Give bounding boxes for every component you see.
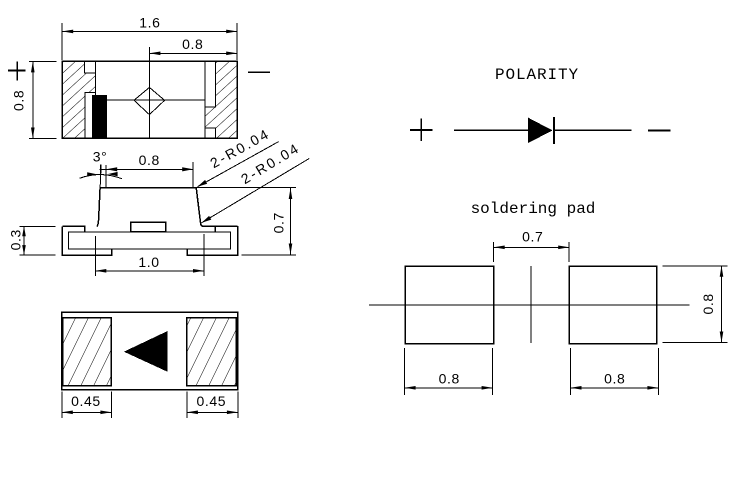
svg-text:3°: 3°: [93, 149, 108, 165]
svg-text:0.3: 0.3: [7, 229, 23, 250]
svg-text:0.8: 0.8: [604, 370, 625, 386]
svg-text:1.0: 1.0: [138, 254, 159, 270]
svg-text:0.8: 0.8: [139, 152, 160, 168]
svg-text:0.7: 0.7: [270, 212, 286, 233]
svg-text:0.45: 0.45: [196, 393, 226, 409]
svg-text:0.7: 0.7: [522, 229, 543, 245]
svg-text:1.6: 1.6: [139, 14, 160, 30]
svg-text:0.8: 0.8: [700, 293, 716, 314]
svg-text:0.8: 0.8: [11, 90, 27, 111]
svg-text:0.8: 0.8: [182, 36, 203, 52]
svg-text:0.45: 0.45: [71, 393, 101, 409]
svg-text:0.8: 0.8: [439, 370, 460, 386]
svg-text:soldering pad: soldering pad: [471, 200, 596, 218]
svg-text:POLARITY: POLARITY: [495, 66, 579, 84]
